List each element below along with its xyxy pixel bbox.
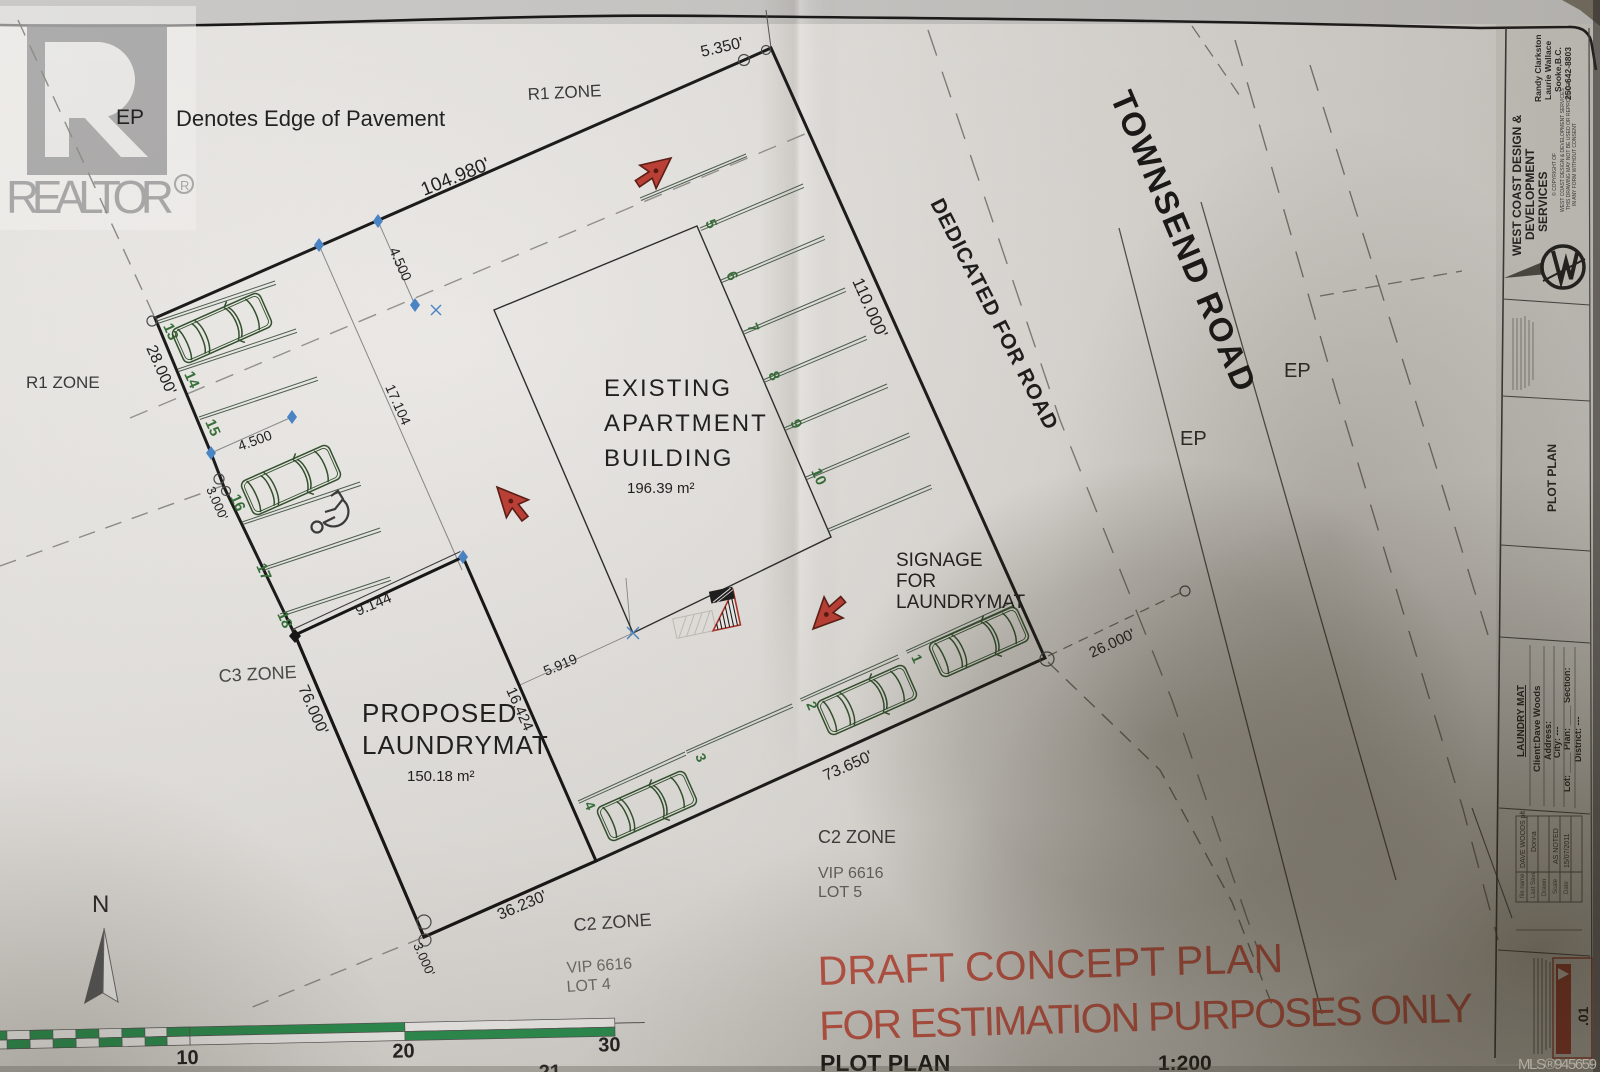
svg-text:MLS®945659: MLS®945659 [1518, 1056, 1597, 1072]
